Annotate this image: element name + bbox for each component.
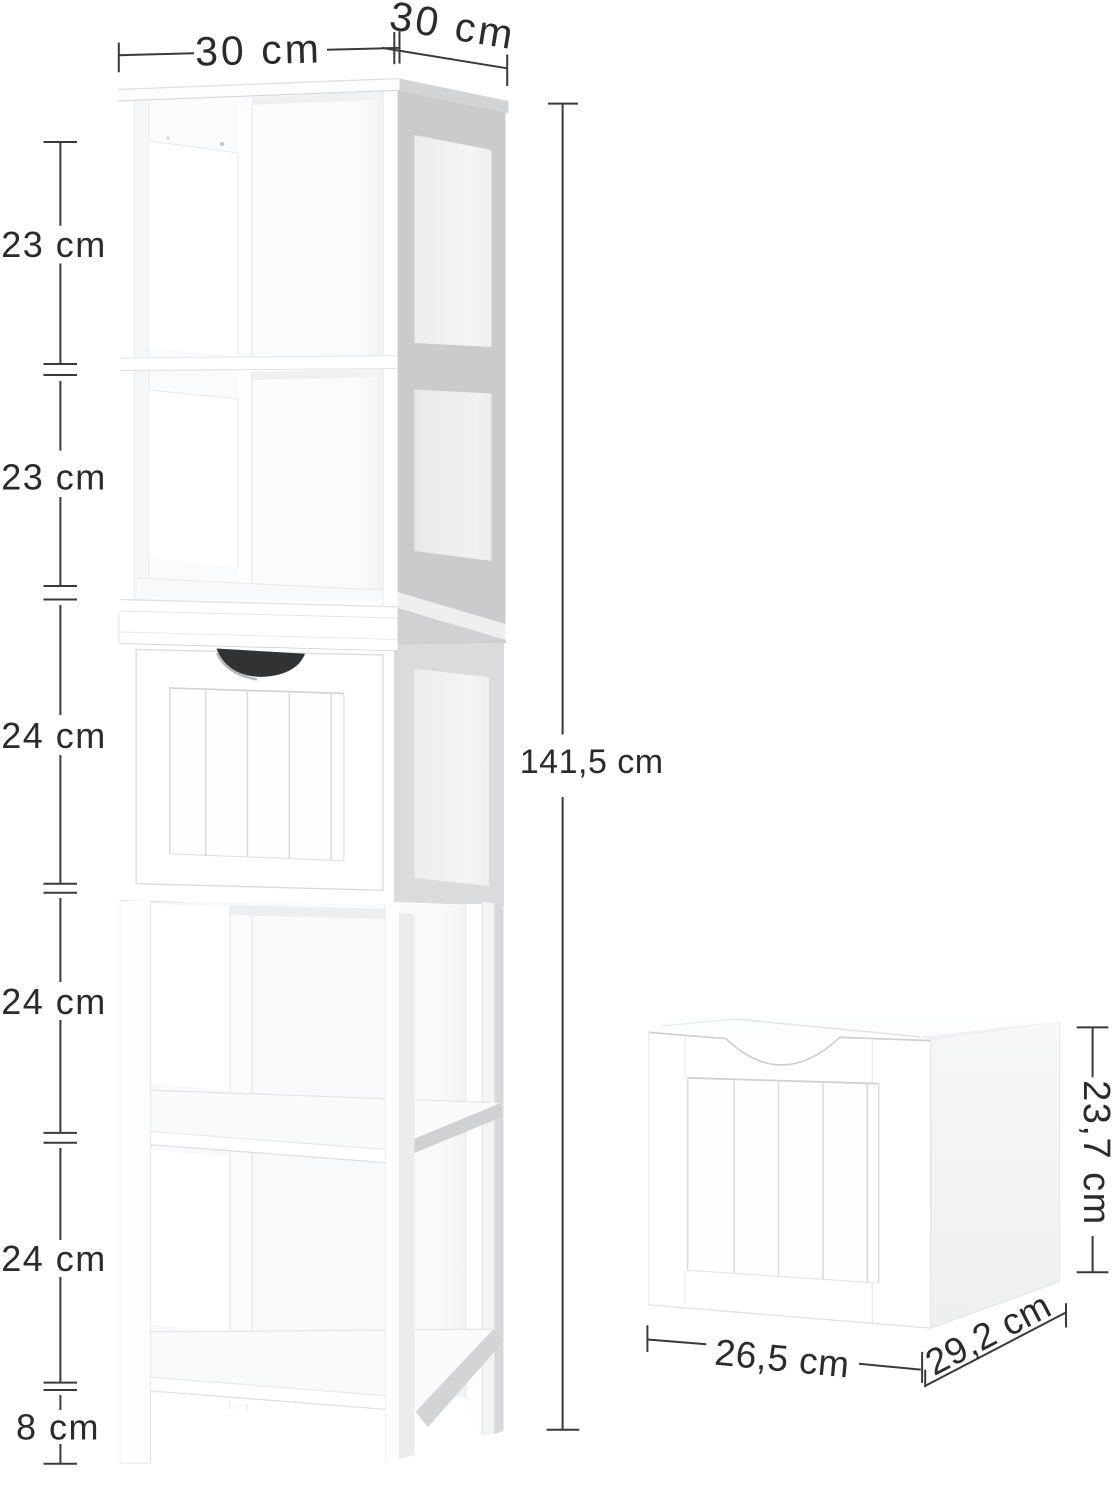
svg-text:8 cm: 8 cm [16,1407,100,1448]
svg-text:24 cm: 24 cm [1,715,107,756]
svg-text:23 cm: 23 cm [1,457,107,498]
svg-text:24 cm: 24 cm [1,981,107,1022]
svg-text:24 cm: 24 cm [1,1238,107,1279]
svg-text:141,5 cm: 141,5 cm [520,743,664,781]
svg-text:23,7 cm: 23,7 cm [1075,1080,1112,1226]
svg-text:23 cm: 23 cm [1,224,107,265]
svg-text:30 cm: 30 cm [195,25,323,74]
